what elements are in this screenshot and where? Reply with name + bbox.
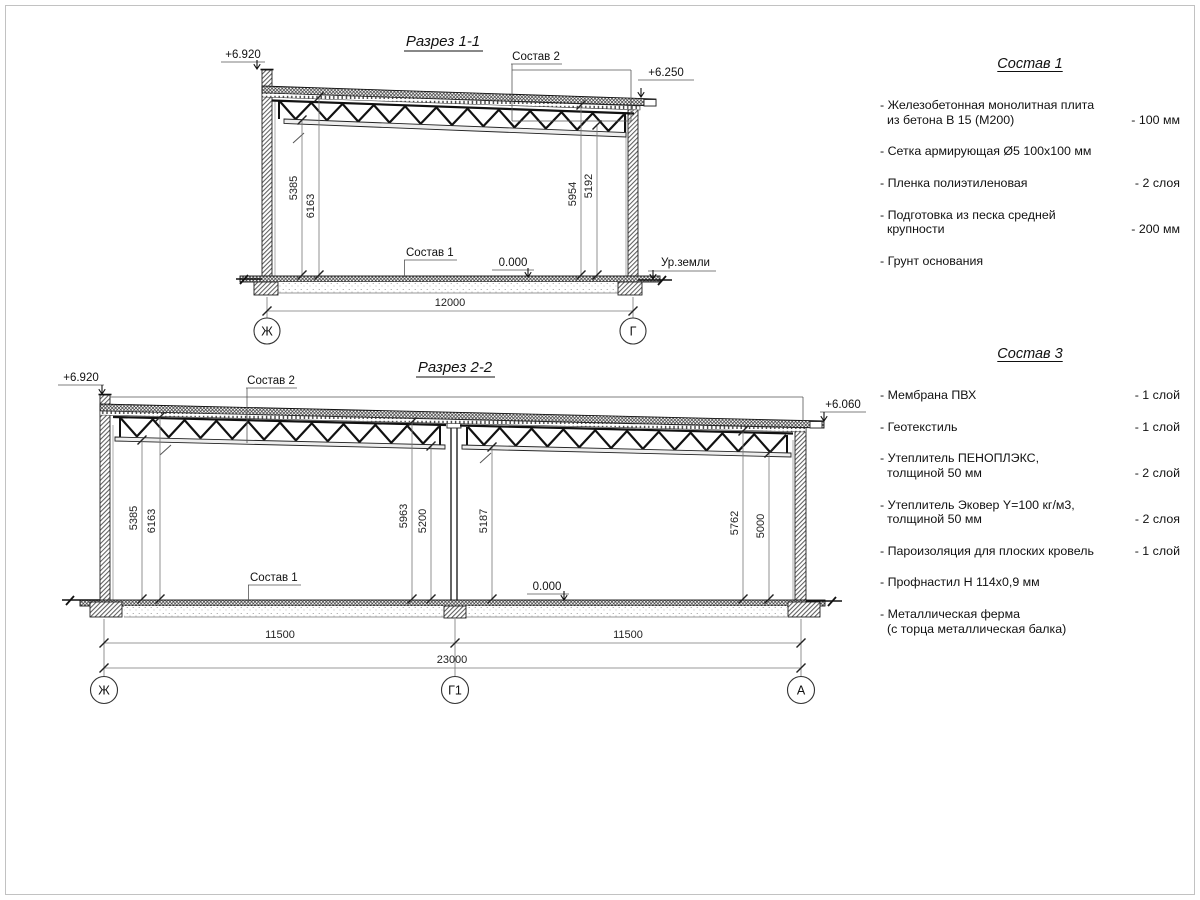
axis-bubble-zh-2: Ж	[98, 684, 110, 698]
sostav3-item-4: - Утеплитель Эковер Y=100 кг/м3, толщино…	[880, 498, 1180, 527]
axis-bubble-g1: Г1	[448, 684, 462, 698]
dim2-5385: 5385	[128, 506, 140, 530]
sostav1-item-5: - Грунт основания	[880, 254, 1180, 269]
sostav3-item-3: - Утеплитель ПЕНОПЛЭКС, толщиной 50 мм -…	[880, 451, 1180, 480]
sostav1-item-4: - Подготовка из песка средней крупности …	[880, 208, 1180, 237]
section1-axes: Ж Г	[254, 318, 646, 344]
section2-left-wall	[99, 395, 114, 604]
sostav3-panel-title: Состав 3	[880, 346, 1180, 363]
elev-right-label: +6.250	[648, 67, 684, 79]
dim2-5200: 5200	[417, 509, 429, 533]
section2-axes: Ж Г1 А	[91, 677, 815, 704]
sostav3-panel: Состав 3 - Мембрана ПВХ - 1 слой - Геоте…	[880, 346, 1180, 653]
sostav1-callout-label-2: Состав 1	[250, 572, 298, 584]
section2-elev-left: +6.920	[58, 372, 105, 394]
elev-left-label-2: +6.920	[63, 372, 99, 384]
dim-5385: 5385	[288, 176, 300, 200]
item-value: - 2 слоя	[1135, 176, 1180, 191]
section1-floor-callout: Состав 1	[404, 247, 457, 277]
sostav1-panel: Состав 1 - Железобетонная монолитная пли…	[880, 56, 1180, 285]
dim2-5000: 5000	[755, 514, 767, 538]
sostav1-item-1: - Железобетонная монолитная плита из бет…	[880, 98, 1180, 127]
sostav1-item-3: - Пленка полиэтиленовая - 2 слоя	[880, 176, 1180, 191]
sostav2-callout-label-2: Состав 2	[247, 375, 295, 387]
item-value: - 1 слой	[1135, 388, 1180, 403]
axis-bubble-zh: Ж	[261, 325, 273, 339]
section1-level-zero: 0.000	[492, 257, 534, 277]
dim2-6163: 6163	[146, 509, 158, 533]
section2-elev-right: +6.060	[820, 399, 866, 421]
section2-right-wall	[793, 428, 806, 603]
dim-11500-left: 11500	[265, 629, 295, 641]
sostav1-item-2: - Сетка армирующая Ø5 100х100 мм	[880, 144, 1180, 159]
dim-11500-right: 11500	[613, 629, 643, 641]
section-2-2: Разрез 2-2	[58, 359, 866, 704]
sostav3-item-7: - Металлическая ферма (с торца металличе…	[880, 607, 1180, 636]
sostav3-item-2: - Геотекстиль - 1 слой	[880, 420, 1180, 435]
item-value: - 100 мм	[1131, 113, 1180, 128]
elev-right-label-2: +6.060	[825, 399, 861, 411]
ground-level-label: Ур.земли	[661, 257, 710, 269]
section1-elev-left: +6.920	[221, 49, 265, 69]
section2-middle-column	[447, 423, 461, 601]
sostav3-item-6: - Профнастил Н 114х0,9 мм	[880, 575, 1180, 590]
elev-left-label: +6.920	[225, 49, 261, 61]
item-value: - 2 слой	[1135, 466, 1180, 481]
section2-level-zero: 0.000	[527, 581, 569, 600]
sostav1-callout-label: Состав 1	[406, 247, 454, 259]
level-zero-label: 0.000	[499, 257, 528, 269]
section2-left-truss	[113, 417, 446, 455]
item-value: - 1 слой	[1135, 420, 1180, 435]
section2-floor-callout: Состав 1	[248, 572, 301, 601]
section1-floor	[236, 275, 672, 295]
dim-12000: 12000	[435, 297, 466, 309]
dim-6163: 6163	[305, 194, 317, 218]
item-value: - 200 мм	[1131, 222, 1180, 237]
sostav3-item-1: - Мембрана ПВХ - 1 слой	[880, 388, 1180, 403]
dim2-5762: 5762	[729, 511, 741, 535]
dim2-5187: 5187	[478, 509, 490, 533]
section1-span-dim: 12000	[263, 297, 638, 318]
sostav2-callout-label: Состав 2	[512, 51, 560, 63]
axis-bubble-g: Г	[630, 325, 637, 339]
section1-right-wall	[626, 105, 638, 278]
section-1-1: Разрез 1-1	[221, 33, 716, 344]
item-value: - 1 слой	[1135, 544, 1180, 559]
item-value: - 2 слоя	[1135, 512, 1180, 527]
section2-span-dims: 11500 11500 23000	[100, 619, 806, 677]
dim-5954: 5954	[567, 182, 579, 206]
dim-5192: 5192	[583, 174, 595, 198]
section2-floor	[62, 596, 842, 618]
section1-elev-right: +6.250	[638, 67, 694, 97]
section1-title: Разрез 1-1	[406, 33, 480, 50]
level-zero-label-2: 0.000	[533, 581, 562, 593]
sostav3-item-5: - Пароизоляция для плоских кровель - 1 с…	[880, 544, 1180, 559]
axis-bubble-a: А	[797, 684, 806, 698]
dim2-5963: 5963	[398, 504, 410, 528]
drawing-sheet: Разрез 1-1	[0, 0, 1200, 900]
sostav1-panel-title: Состав 1	[880, 56, 1180, 73]
section2-title: Разрез 2-2	[418, 359, 493, 376]
dim-23000: 23000	[437, 654, 468, 666]
